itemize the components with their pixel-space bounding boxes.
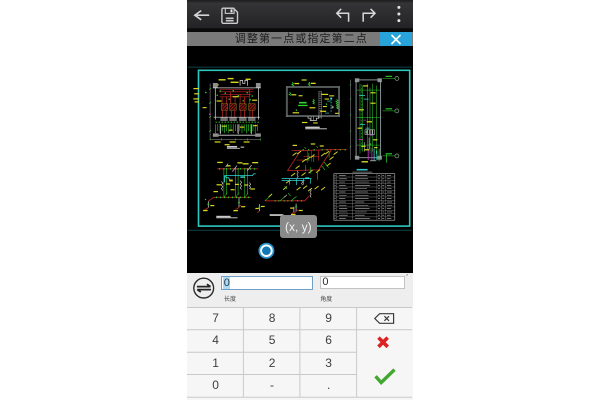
svg-text:(x, y): (x, y) [285, 220, 312, 234]
